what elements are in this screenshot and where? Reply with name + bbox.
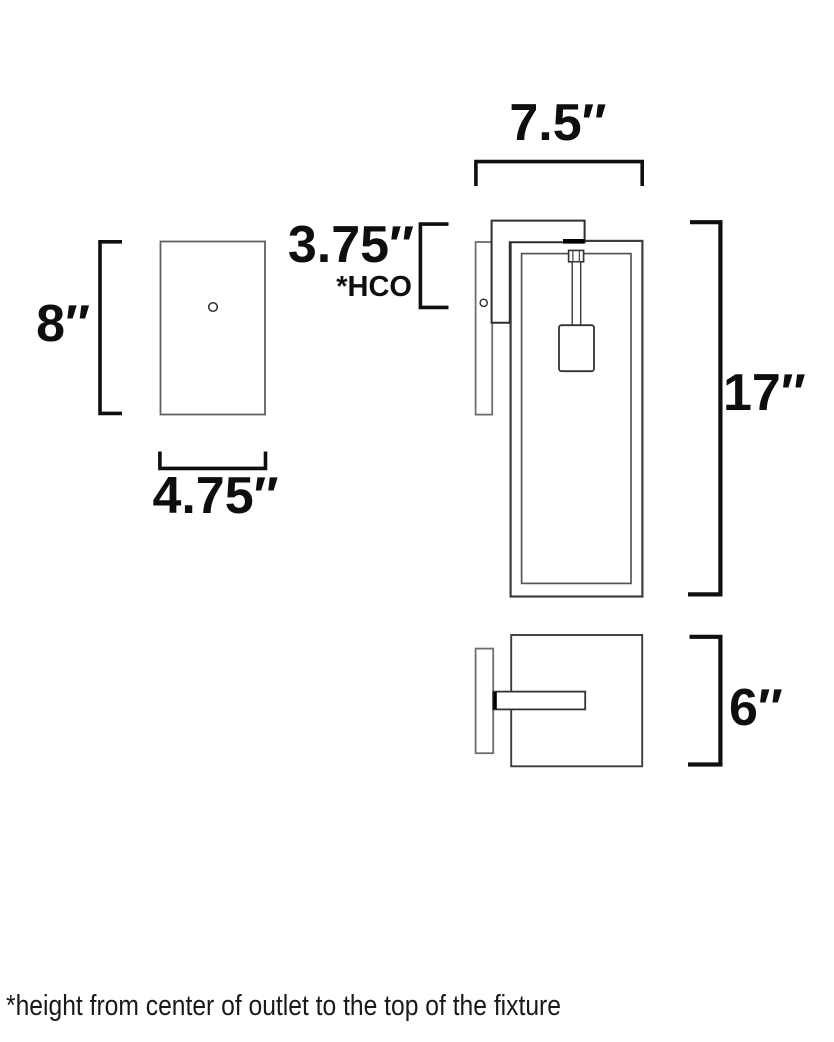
dimension-label-backplate-width: 4.75″ bbox=[133, 470, 298, 522]
dimension-label-fixture-height: 17″ bbox=[723, 367, 806, 419]
backplate-side-outline bbox=[476, 242, 493, 415]
dimension-label-backplate-height: 8″ bbox=[16, 298, 90, 350]
dimension-label-fixture-depth: 7.5″ bbox=[472, 97, 644, 149]
backplate-front-view bbox=[161, 242, 266, 415]
socket-stem bbox=[572, 262, 581, 325]
bracket-3-75in bbox=[420, 224, 448, 307]
dimension-label-hco-value: 3.75″ bbox=[252, 219, 414, 271]
bracket-8in bbox=[100, 242, 122, 414]
mounting-hole-front bbox=[209, 303, 218, 312]
socket-nut bbox=[569, 250, 584, 261]
fixture-top-view bbox=[476, 635, 643, 766]
mounting-arm-top bbox=[493, 692, 585, 710]
backplate-top-outline bbox=[476, 649, 494, 754]
socket-body bbox=[559, 325, 594, 371]
bracket-7-5in bbox=[476, 162, 642, 186]
hco-footnote: *height from center of outlet to the top… bbox=[6, 989, 561, 1024]
sconce-line-drawing bbox=[0, 0, 834, 1042]
mounting-hole-side bbox=[480, 299, 487, 306]
bracket-4-75in bbox=[160, 452, 266, 469]
fixture-side-view bbox=[476, 221, 643, 597]
bracket-17in bbox=[688, 222, 720, 594]
backplate-front-outline bbox=[161, 242, 266, 415]
dimension-label-fixture-width: 6″ bbox=[729, 682, 783, 734]
dimension-label-hco-note: *HCO bbox=[302, 273, 412, 302]
bracket-6in bbox=[688, 637, 720, 765]
diagram-canvas: 7.5″ 8″ 4.75″ 3.75″ *HCO 17″ 6″ *height … bbox=[0, 0, 834, 1042]
